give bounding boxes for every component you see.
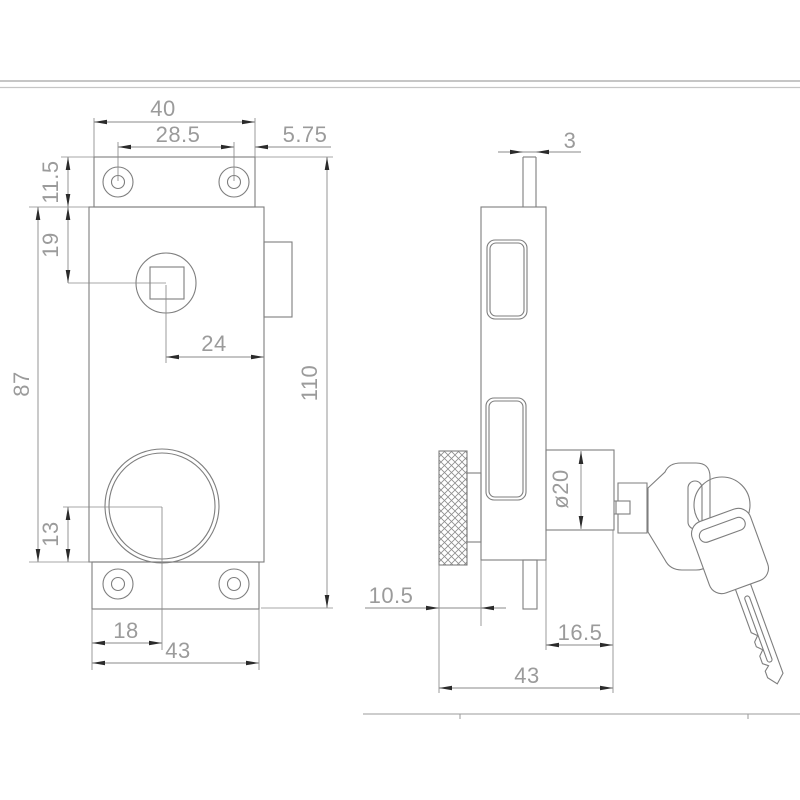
slot-lower-outer	[486, 398, 526, 500]
dim-label: 110	[297, 365, 322, 402]
dim-label: 18	[113, 618, 138, 643]
bottom-tab	[523, 560, 537, 609]
slot-lower-inner	[489, 401, 523, 497]
dim-label: 10.5	[369, 583, 414, 608]
mounting-hole-bottom-right-inner	[228, 578, 241, 591]
mounting-hole-bottom-right-outer	[219, 569, 249, 599]
technical-drawing: 40 28.5 5.75 11.5 19 87	[0, 0, 800, 800]
side-view	[439, 157, 800, 694]
dim-label: ø20	[548, 469, 573, 508]
dim-cylinder-left-offset: 18	[92, 618, 162, 645]
dim-label: 5.75	[283, 122, 328, 147]
dim-label: 28.5	[156, 122, 201, 147]
front-view	[89, 157, 292, 609]
dim-body-height: 87	[9, 207, 40, 562]
dim-cylinder-length: 16.5	[546, 620, 613, 647]
side-body	[481, 207, 546, 560]
latch-tab	[264, 242, 292, 317]
dim-label: 43	[165, 638, 190, 663]
dim-label: 43	[514, 663, 539, 688]
lock-body	[89, 207, 264, 562]
dim-label: 19	[38, 232, 63, 257]
side-key	[688, 505, 800, 694]
slot-upper-inner	[490, 243, 524, 316]
dim-label: 87	[9, 371, 34, 396]
dim-bolt-width: 3	[498, 128, 581, 154]
knurled-knob	[439, 451, 467, 565]
dim-spindle-side-offset: 24	[166, 331, 264, 359]
side-key-blade	[733, 576, 786, 686]
keyway	[616, 501, 630, 514]
dim-hole-spacing: 28.5	[118, 122, 234, 149]
dim-hole-edge-offset: 5.75	[255, 122, 331, 149]
dim-overall-depth: 43	[439, 663, 613, 690]
mounting-hole-bottom-left-inner	[112, 578, 125, 591]
dim-overall-height: 110	[297, 157, 329, 608]
dim-knob-offset: 10.5	[365, 583, 506, 610]
knob-stem	[467, 473, 481, 542]
dim-spindle-top-offset: 19	[38, 207, 70, 283]
dim-top-width: 40	[94, 96, 255, 124]
dim-label: 40	[150, 96, 175, 121]
front-view-dimensions: 40 28.5 5.75 11.5 19 87	[9, 96, 333, 670]
dim-flange-height: 11.5	[38, 157, 70, 207]
dim-cylinder-diameter: ø20	[548, 451, 583, 529]
dim-cylinder-bottom-offset: 13	[38, 507, 70, 562]
dim-label: 13	[38, 521, 63, 546]
slot-upper-outer	[487, 240, 527, 319]
technical-drawing-page: 40 28.5 5.75 11.5 19 87	[0, 0, 800, 800]
dim-label: 16.5	[558, 620, 603, 645]
dim-label: 24	[201, 331, 226, 356]
dim-label: 3	[564, 128, 577, 153]
dim-label: 11.5	[38, 160, 63, 203]
mounting-hole-bottom-left-outer	[103, 569, 133, 599]
